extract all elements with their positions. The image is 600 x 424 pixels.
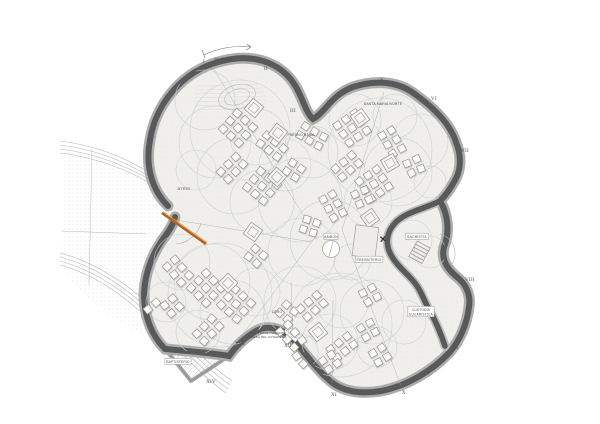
room-label-text: AMBON bbox=[324, 235, 338, 239]
room-label-santa-maria-norte: SANTA MARIA NORTE bbox=[364, 102, 403, 106]
room-label-text: ATRIO bbox=[178, 186, 191, 191]
room-label-baptisterio: BAPTISTERIO bbox=[165, 358, 191, 364]
site-plan-svg: VIA CRUCIS ATRIOFRESNO RAMASANTA MARIA N… bbox=[0, 0, 600, 424]
station-I: I bbox=[203, 60, 205, 65]
station-IX: IX bbox=[453, 346, 459, 351]
room-label-custodia-eucaristica: CUSTODIAEUCARISTICA bbox=[408, 306, 434, 316]
station-XI: XI bbox=[331, 393, 337, 398]
station-VIII: VIII bbox=[465, 278, 475, 283]
room-label-coro: CORO bbox=[272, 310, 283, 314]
room-label-sala-mesa: SALA NAVE PONIENTEMESA DEL CONGRESO bbox=[251, 331, 287, 339]
altar-platform bbox=[352, 225, 379, 259]
room-label-text: BAPTISTERIO bbox=[166, 360, 190, 364]
room-label-text: MESA DEL CONGRESO bbox=[251, 335, 287, 339]
room-label-text: EUCARISTICA bbox=[409, 312, 433, 316]
station-V: V bbox=[380, 78, 384, 83]
station-VI: VI bbox=[431, 97, 437, 102]
station-XIII: XIII bbox=[235, 342, 245, 347]
chair bbox=[309, 228, 318, 237]
room-label-atrio: ATRIO bbox=[178, 186, 191, 191]
station-III: III bbox=[290, 109, 296, 114]
via-crucis-label: VIA CRUCIS bbox=[214, 57, 232, 61]
room-label-fresno-rama: FRESNO RAMA bbox=[287, 133, 315, 137]
architectural-plan-page: VIA CRUCIS ATRIOFRESNO RAMASANTA MARIA N… bbox=[0, 0, 600, 424]
station-VII: VII bbox=[461, 149, 469, 154]
station-XIV: XIV bbox=[206, 380, 216, 385]
room-label-text: PRESBITERIO bbox=[357, 258, 382, 262]
room-label-ambon: AMBON bbox=[324, 233, 338, 239]
room-label-text: SACRISTIA bbox=[407, 235, 427, 239]
station-II: II bbox=[264, 67, 268, 72]
room-label-text: FRESNO RAMA bbox=[287, 133, 315, 137]
chair bbox=[302, 215, 311, 224]
station-XII: XII bbox=[284, 344, 292, 349]
room-label-sacristia: SACRISTIA bbox=[405, 233, 428, 239]
room-label-text: CORO bbox=[272, 310, 283, 314]
station-IV: IV bbox=[327, 101, 333, 106]
station-X: X bbox=[402, 391, 406, 396]
room-label-presbiterio: PRESBITERIO bbox=[355, 256, 383, 262]
room-label-text: SANTA MARIA NORTE bbox=[364, 102, 403, 106]
room-label-text: CUSTODIA bbox=[412, 308, 431, 312]
